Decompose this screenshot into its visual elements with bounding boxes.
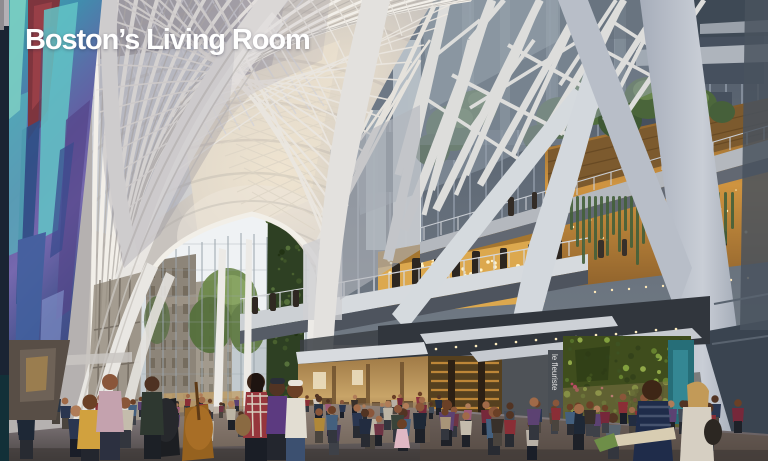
svg-text:le fleuriste: le fleuriste <box>550 354 559 391</box>
